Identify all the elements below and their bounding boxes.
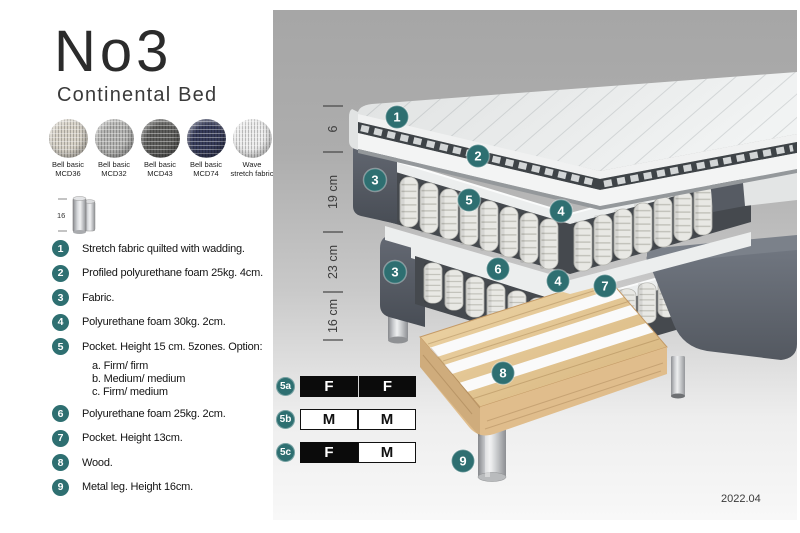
legend-number-badge: 8 (52, 454, 69, 471)
dim-6: 6 (326, 125, 340, 132)
firmness-badge: 5a (276, 377, 295, 396)
legend-item-3: 3 Fabric. (52, 289, 276, 306)
callout-3b: 3 (384, 261, 407, 284)
firmness-row-5b: 5b M M (276, 409, 416, 430)
fabric-swatch-image (233, 119, 272, 158)
svg-text:4: 4 (557, 204, 565, 219)
fabric-swatch-image (141, 119, 180, 158)
svg-text:3: 3 (391, 265, 398, 280)
firmness-badge: 5c (276, 443, 295, 462)
firmness-cell: M (358, 409, 416, 430)
bed-cutaway-panel: 6 19 cm 23 cm 16 cm 1 2 4 3 5 4 6 7 3 8 … (273, 10, 797, 520)
legend-number-badge: 6 (52, 405, 69, 422)
callout-2: 2 (467, 145, 490, 168)
firmness-cell: F (358, 376, 416, 397)
version-date: 2022.04 (721, 493, 761, 505)
fabric-swatch-image (49, 119, 88, 158)
fabric-swatch: Bell basicMCD36 (46, 119, 90, 178)
firmness-cell: F (300, 442, 358, 463)
mattress-left-cap (349, 109, 358, 150)
legend-number-badge: 7 (52, 430, 69, 447)
materials-legend: 1 Stretch fabric quilted with wadding. 2… (52, 240, 276, 503)
dim-19cm: 19 cm (326, 175, 340, 209)
product-sheet: No3 Continental Bed Bell basicMCD36 Bell… (0, 0, 800, 533)
legend-number-badge: 5 (52, 338, 69, 355)
legend-item-2: 2 Profiled polyurethane foam 25kg. 4cm. (52, 265, 276, 282)
firmness-row-5c: 5c F M (276, 442, 416, 463)
legend-item-6: 6 Polyurethane foam 25kg. 2cm. (52, 405, 276, 422)
svg-text:5: 5 (465, 193, 472, 208)
fabric-swatch-image (187, 119, 226, 158)
firmness-cell: M (358, 442, 416, 463)
dim-16cm: 16 cm (326, 299, 340, 333)
svg-text:7: 7 (601, 279, 608, 294)
fabric-swatches: Bell basicMCD36 Bell basicMCD32 Bell bas… (46, 119, 274, 178)
legend-item-5-options: a. Firm/ firm b. Medium/ medium c. Firm/… (92, 360, 276, 399)
callout-7: 7 (594, 275, 617, 298)
right-metal-leg (671, 356, 685, 399)
callout-4b: 4 (547, 270, 570, 293)
firmness-cell: F (300, 376, 358, 397)
legend-item-5: 5 Pocket. Height 15 cm. 5zones. Option: (52, 338, 276, 355)
dim-23cm: 23 cm (326, 245, 340, 279)
lower-box (380, 235, 797, 482)
callout-3a: 3 (364, 169, 387, 192)
fabric-swatch: Bell basicMCD43 (138, 119, 182, 178)
legend-number-badge: 4 (52, 314, 69, 331)
page-title: No3 (54, 18, 172, 85)
legend-item-8: 8 Wood. (52, 454, 276, 471)
metal-leg-icon: 16 (54, 191, 108, 239)
legend-item-1: 1 Stretch fabric quilted with wadding. (52, 240, 276, 257)
firmness-cell: M (300, 409, 358, 430)
legend-item-7: 7 Pocket. Height 13cm. (52, 430, 276, 447)
page-subtitle: Continental Bed (57, 84, 217, 107)
legend-number-badge: 9 (52, 479, 69, 496)
svg-text:4: 4 (554, 274, 562, 289)
legend-item-9: 9 Metal leg. Height 16cm. (52, 479, 276, 496)
callout-5: 5 (458, 189, 481, 212)
fabric-swatch: Wavestretch fabric (230, 119, 274, 178)
legend-number-badge: 1 (52, 240, 69, 257)
svg-text:8: 8 (499, 366, 506, 381)
svg-text:6: 6 (494, 262, 501, 277)
dimension-labels: 6 19 cm 23 cm 16 cm (326, 125, 340, 333)
fabric-swatch-image (95, 119, 134, 158)
callout-4a: 4 (550, 200, 573, 223)
callout-8: 8 (492, 362, 515, 385)
svg-text:9: 9 (459, 454, 466, 469)
legend-item-4: 4 Polyurethane foam 30kg. 2cm. (52, 314, 276, 331)
svg-text:1: 1 (393, 110, 400, 125)
callout-6: 6 (487, 258, 510, 281)
callout-1: 1 (386, 106, 409, 129)
firmness-row-5a: 5a F F (276, 376, 416, 397)
callout-9: 9 (452, 450, 475, 473)
fabric-swatch: Bell basicMCD32 (92, 119, 136, 178)
fabric-swatch: Bell basicMCD74 (184, 119, 228, 178)
svg-text:2: 2 (474, 149, 481, 164)
leg-cylinder-front (73, 197, 86, 235)
legend-number-badge: 3 (52, 289, 69, 306)
firmness-badge: 5b (276, 410, 295, 429)
svg-text:3: 3 (371, 173, 378, 188)
svg-text:16: 16 (57, 211, 65, 220)
legend-number-badge: 2 (52, 265, 69, 282)
